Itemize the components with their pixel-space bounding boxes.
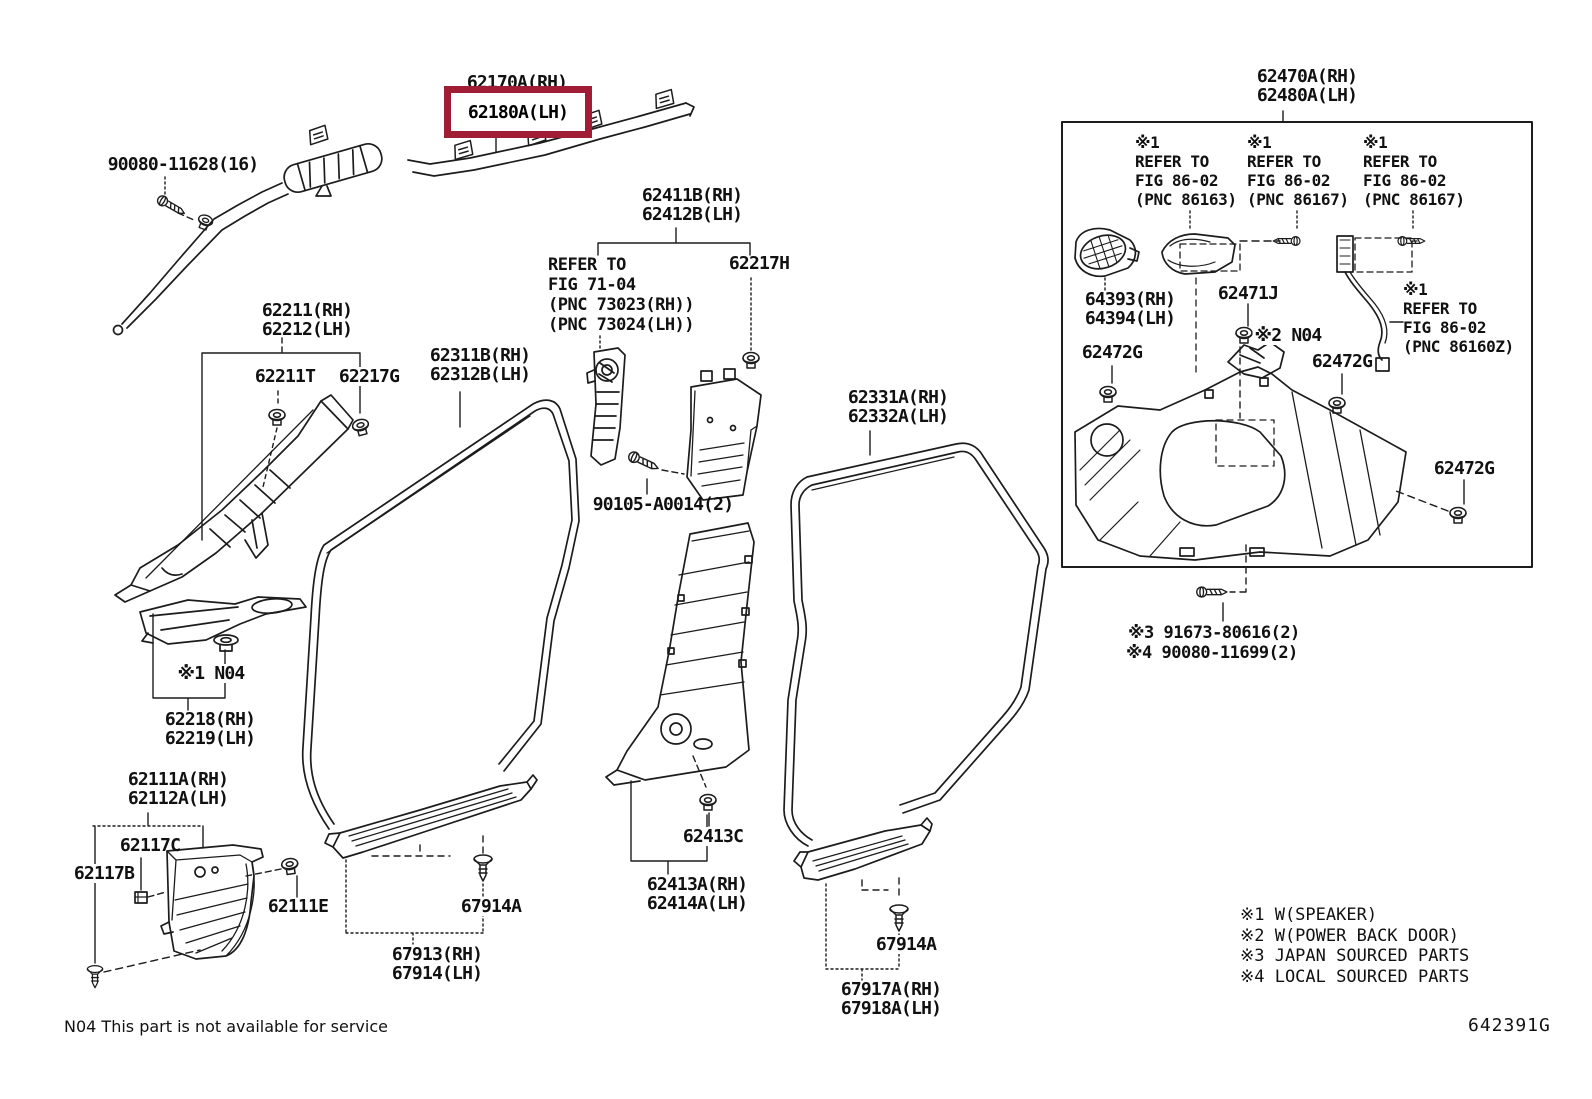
rear-door-weatherstrip-drawing [784,431,1048,846]
part-label-62211T[interactable]: 62211T [255,367,315,386]
part-number: 62211(RH) [262,301,352,320]
part-number: 62218(RH) [165,710,255,729]
figure-code: 642391G [1468,1015,1551,1036]
part-label-62311B-62312B[interactable]: 62311B(RH) 62312B(LH) [430,346,530,384]
note-label-n04-1: ※1 N04 [176,664,247,683]
legend-item-local-sourced: ※4 LOCAL SOURCED PARTS [1240,967,1469,988]
part-label-62413A-62414A[interactable]: 62413A(RH) 62414A(LH) [647,875,747,913]
part-label-62470A-62480A[interactable]: 62470A(RH) 62480A(LH) [1257,67,1357,105]
part-number: 62111A(RH) [128,770,228,789]
part-number: 62312B(LH) [430,365,530,384]
legend: ※1 W(SPEAKER) ※2 W(POWER BACK DOOR) ※3 J… [1240,905,1469,987]
part-label-62217G[interactable]: 62217G [337,367,401,386]
part-label-62472G-1[interactable]: 62472G [1082,343,1142,362]
part-label-90105-A0014[interactable]: 90105-A0014(2) [593,495,734,514]
legend-item-power-back-door: ※2 W(POWER BACK DOOR) [1240,926,1469,947]
part-label-67914A-rear[interactable]: 67914A [874,935,938,954]
refer-note-fig86-02-c: ※1 REFER TO FIG 86-02 (PNC 86167) [1363,133,1465,209]
part-label-62111A-62112A[interactable]: 62111A(RH) 62112A(LH) [128,770,228,808]
part-label-90080-11699[interactable]: ※4 90080-11699(2) [1126,643,1298,663]
part-label-62413C[interactable]: 62413C [681,827,745,846]
front-scuff-plate-drawing [325,775,537,944]
part-number: 62212(LH) [262,320,352,339]
part-label-62472G-3[interactable]: 62472G [1434,459,1494,478]
part-number: 67918A(LH) [841,999,941,1018]
front-pillar-garnish-drawing [115,338,371,602]
part-label-64393-64394[interactable]: 64393(RH) 64394(LH) [1085,290,1175,328]
part-label-62411B-62412B[interactable]: 62411B(RH) 62412B(LH) [642,186,742,224]
part-number: 62180A(LH) [468,103,568,122]
center-pillar-lower-garnish-drawing [606,523,754,874]
part-label-91673-80616[interactable]: ※3 91673-80616(2) [1128,623,1300,643]
part-label-62117C[interactable]: 62117C [120,836,180,855]
part-label-62472G-2[interactable]: 62472G [1310,352,1374,371]
part-number: 62219(LH) [165,729,255,748]
part-number: 62413A(RH) [647,875,747,894]
refer-note-fig86-02-a: ※1 REFER TO FIG 86-02 (PNC 86163) [1135,133,1237,209]
part-number: 62480A(LH) [1257,86,1357,105]
part-number: 62311B(RH) [430,346,530,365]
part-label-67913-67914[interactable]: 67913(RH) 67914(LH) [392,945,482,983]
part-label-62331A-62332A[interactable]: 62331A(RH) 62332A(LH) [848,388,948,426]
highlighted-part-62180A[interactable]: 62180A(LH) [444,86,592,138]
front-door-weatherstrip-drawing [303,392,579,829]
part-number: 62112A(LH) [128,789,228,808]
part-number: 67914(LH) [392,964,482,983]
part-number: 62411B(RH) [642,186,742,205]
refer-note-fig71-04: REFER TO FIG 71-04 (PNC 73023(RH)) (PNC … [548,255,694,335]
part-number: 62470A(RH) [1257,67,1357,86]
parts-catalog-diagram: 90080-11628(16) 62170A(RH) 62180A(LH) 62… [0,0,1592,1099]
part-label-62211-62212[interactable]: 62211(RH) 62212(LH) [262,301,352,339]
part-number: 62412B(LH) [642,205,742,224]
part-number: 62331A(RH) [848,388,948,407]
part-number: 67917A(RH) [841,980,941,999]
part-number: 62332A(LH) [848,407,948,426]
part-label-67917A-67918A[interactable]: 67917A(RH) 67918A(LH) [841,980,941,1018]
part-number: 64394(LH) [1085,309,1175,328]
legend-item-japan-sourced: ※3 JAPAN SOURCED PARTS [1240,946,1469,967]
part-label-62471J[interactable]: 62471J [1218,284,1278,303]
part-number: 67913(RH) [392,945,482,964]
part-label-90080-11628[interactable]: 90080-11628(16) [108,155,259,174]
note-label-n04-2: ※2 N04 [1253,326,1324,345]
part-number: 64393(RH) [1085,290,1175,309]
refer-note-fig86-02-b: ※1 REFER TO FIG 86-02 (PNC 86167) [1247,133,1349,209]
legend-item-speaker: ※1 W(SPEAKER) [1240,905,1469,926]
part-label-62111E[interactable]: 62111E [268,897,328,916]
part-number: 62414A(LH) [647,894,747,913]
pillar-garnish-lower-drawing [140,597,306,710]
part-label-62217H[interactable]: 62217H [729,254,789,273]
part-label-67914A-front[interactable]: 67914A [459,897,523,916]
service-note: N04 This part is not available for servi… [64,1017,388,1036]
part-label-62218-62219[interactable]: 62218(RH) 62219(LH) [165,710,255,748]
refer-note-fig86-02-d: ※1 REFER TO FIG 86-02 (PNC 86160Z) [1403,280,1514,356]
rear-scuff-plate-drawing [794,818,932,980]
part-label-62117B[interactable]: 62117B [72,864,136,883]
